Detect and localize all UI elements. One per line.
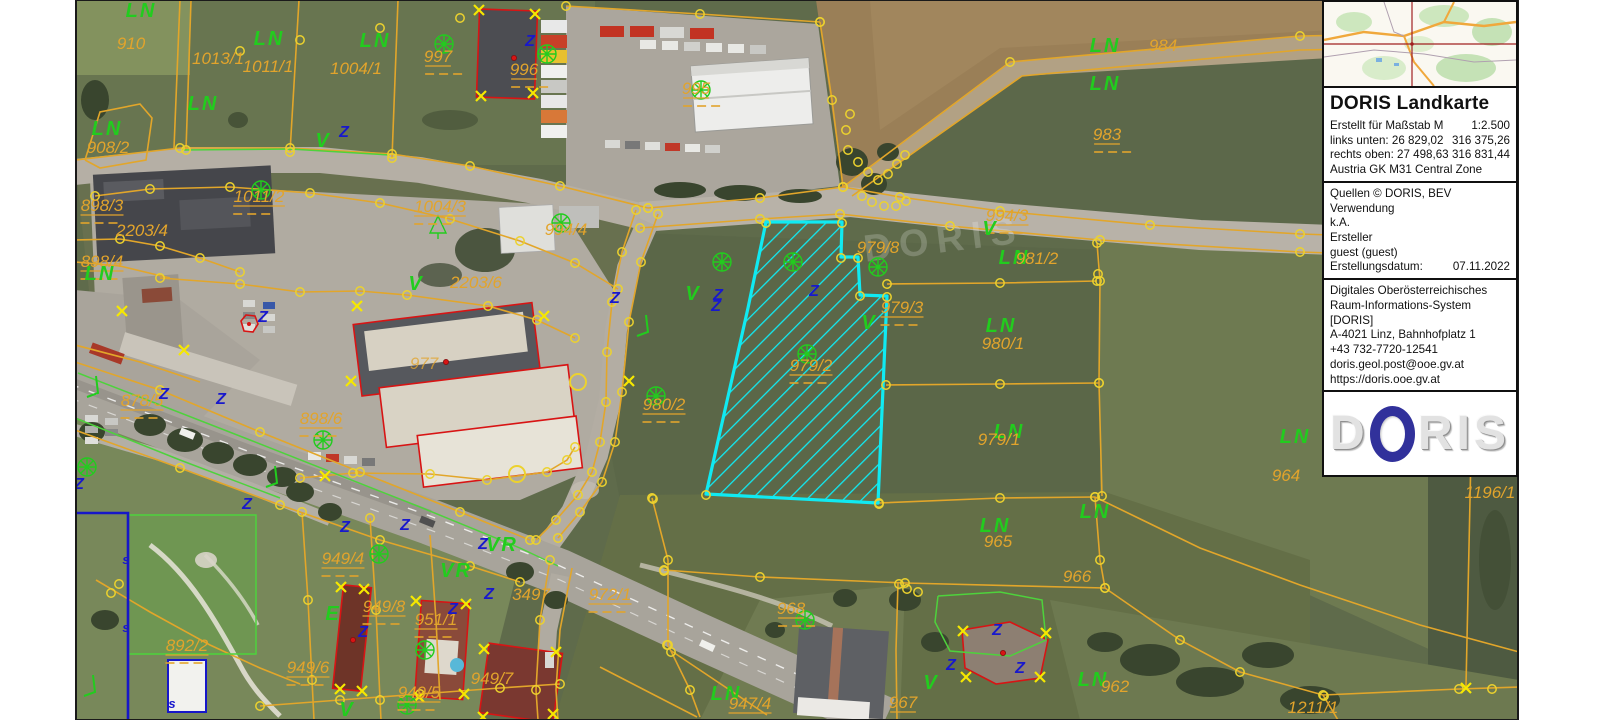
well-dot [247,322,251,326]
map-label-V: V [315,130,330,152]
map-label-E: E [325,603,340,625]
map-label-LN: LN [1280,426,1311,448]
parcel-label-995: 995 [682,79,711,98]
org-line2: Raum-Informations-System [DORIS] [1330,299,1510,328]
parcel-label-968: 968 [777,599,806,618]
map-label-LN: LN [1080,501,1111,523]
left-margin [0,0,75,720]
parcel-label-964: 964 [1272,466,1300,485]
org-url: https://doris.ooe.gv.at [1330,373,1510,388]
map-label-Z: Z [399,517,411,534]
farm-building [793,625,889,720]
red-point-icon [443,359,448,364]
parcel-label-967: 967 [889,693,918,712]
parcel-label-898-6: 898/6 [300,409,343,428]
right-margin [1519,0,1600,720]
map-label-Z: Z [524,33,536,50]
map-label-LN: LN [188,93,219,115]
map-label-Z: Z [1014,660,1026,677]
scale-value: 1:2.500 [1471,119,1510,134]
map-label-Z: Z [808,283,820,300]
map-label-Z: Z [357,624,369,641]
map-label-Z: Z [241,496,253,513]
warehouse-red-outline [476,9,537,99]
org-line3: A-4021 Linz, Bahnhofplatz 1 [1330,328,1510,343]
usage-label: Verwendung [1330,202,1510,217]
parcel-label-898-3: 898/3 [81,196,124,215]
map-label-LN: LN [85,263,116,285]
parcel-label-949-8: 949/8 [363,597,406,616]
map-label-LN: LN [254,28,285,50]
contact-box: Digitales Oberösterreichisches Raum-Info… [1322,278,1518,392]
parcel-label-1004-3: 1004/3 [414,197,467,216]
map-label-V: V [685,283,700,305]
map-label-V: V [339,699,354,720]
parcel-label-979-8: 979/8 [857,238,900,257]
usage-value: k.A. [1330,216,1510,231]
parcel-label-949-6: 949/6 [287,658,330,677]
parcel-label-908-2: 908/2 [87,138,130,157]
title-scale-box: DORIS Landkarte Erstellt für Maßstab M1:… [1322,86,1518,183]
tree-icon [869,258,887,276]
creator-value: guest (guest) [1330,246,1510,261]
parcel-label-966: 966 [1063,567,1092,586]
parcel-label-1011-1: 1011/1 [243,57,294,76]
map-label-V: V [923,672,938,694]
crs-zone: Austria GK M31 Central Zone [1330,163,1510,178]
tree-icon [78,458,96,476]
parcel-label-981-2: 981/2 [1016,249,1059,268]
parcel-label-1011-2: 1011/2 [234,187,285,206]
parcel-label-994-4: 994/4 [545,220,588,239]
parcel-label-3497: 3497 [512,585,550,604]
parcel-label-977: 977 [410,354,439,373]
map-label-Z: Z [991,622,1003,639]
parcel-label-979-2: 979/2 [790,356,833,375]
parcel-label-1004-1: 1004/1 [330,59,382,78]
parcel-label-1013-1: 1013/1 [192,49,244,68]
parcel-label-980-1: 980/1 [982,334,1025,353]
map-label-Z: Z [609,290,621,307]
tree-icon [784,253,802,271]
map-label-V: V [861,312,876,334]
map-label-Z: Z [215,391,227,408]
parcel-label-965: 965 [984,532,1013,551]
parcel-label-892-2: 892/2 [166,636,209,655]
map-label-LN: LN [126,0,157,22]
tree-icon [314,431,332,449]
map-label-LN: LN [92,118,123,140]
parcel-label-1211-1: 1211/1 [1288,698,1339,717]
doris-logo-ris: RIS [1418,410,1510,458]
map-label-VR: VR [486,534,518,556]
map-label-s: s [122,552,129,567]
tree-icon [370,545,388,563]
tree-icon [538,45,556,63]
map-label-V: V [982,218,997,240]
map-label-V: V [408,273,423,295]
sources: Quellen © DORIS, BEV [1330,187,1510,202]
map-label-Z: Z [945,657,957,674]
creation-date-label: Erstellungsdatum: [1330,260,1423,275]
creator-label: Ersteller [1330,231,1510,246]
map-label-Z: Z [158,386,170,403]
parcel-label-910: 910 [117,34,146,53]
org-email: doris.geol.post@ooe.gv.at [1330,358,1510,373]
source-box: Quellen © DORIS, BEV Verwendung k.A. Ers… [1322,181,1518,280]
parcel-label-980-2: 980/2 [643,395,686,414]
map-label-LN: LN [360,30,391,52]
org-phone: +43 732-7720-12541 [1330,343,1510,358]
map-label-Z: Z [257,309,269,326]
overview-map-box [1322,0,1518,88]
parcel-label-949-4: 949/4 [322,549,365,568]
map-label-VR: VR [440,560,472,582]
parcel-label-949-7: 949/7 [471,669,514,688]
parcel-label-983: 983 [1093,125,1122,144]
parcel-label-979-3: 979/3 [881,298,924,317]
extent-ur-value: 316 831,44 [1452,148,1510,163]
map-label-s: s [168,696,175,711]
red-point-icon [350,637,355,642]
parcel-label-997: 997 [424,47,453,66]
parcel-label-878-5: 878/5 [121,391,164,410]
doris-logo-o-ring [1370,406,1415,462]
map-label-Z: Z [710,298,722,315]
parcel-label-962: 962 [1101,677,1130,696]
parcel-label-1196-1: 1196/1 [1465,483,1516,502]
parcel-label-996: 996 [510,60,539,79]
doris-logo-d: D [1330,410,1369,458]
map-label-LN: LN [1090,73,1121,95]
extent-ll-value: 316 375,26 [1452,134,1510,149]
org-line1: Digitales Oberösterreichisches [1330,284,1510,299]
extent-ll-label: links unten: 26 829,02 [1330,134,1443,149]
extent-ur-label: rechts oben: 27 498,63 [1330,148,1449,163]
panel-title: DORIS Landkarte [1330,93,1510,115]
parcel-label-979-1: 979/1 [978,430,1021,449]
doris-landkarte-export: DORIS LN910LNLN1013/11011/11004/19979969… [0,0,1600,720]
map-label-Z: Z [447,601,459,618]
parcel-label-947-4: 947/4 [729,694,772,713]
parcel-label-972-1: 972/1 [589,585,632,604]
map-label-LN: LN [1090,35,1121,57]
parcel-label-2203-4: 2203/4 [115,221,168,240]
map-info-panel: DORIS Landkarte Erstellt für Maßstab M1:… [1322,0,1518,477]
map-label-Z: Z [483,586,495,603]
map-label-Z: Z [338,124,350,141]
map-label-Z: Z [477,536,489,553]
overview-locator-map [1324,2,1516,86]
map-label-s: s [122,620,129,635]
map-label-Z: Z [339,519,351,536]
scale-label: Erstellt für Maßstab M [1330,119,1443,134]
creation-date-value: 07.11.2022 [1453,260,1510,275]
parcel-label-2203-6: 2203/6 [449,273,503,292]
parcel-label-949-5: 949/5 [398,683,441,702]
parcel-label-984: 984 [1149,36,1177,55]
red-point-icon [1000,650,1005,655]
logo-box: D RIS [1322,390,1518,477]
tree-icon [713,253,731,271]
tree-icon [416,641,434,659]
